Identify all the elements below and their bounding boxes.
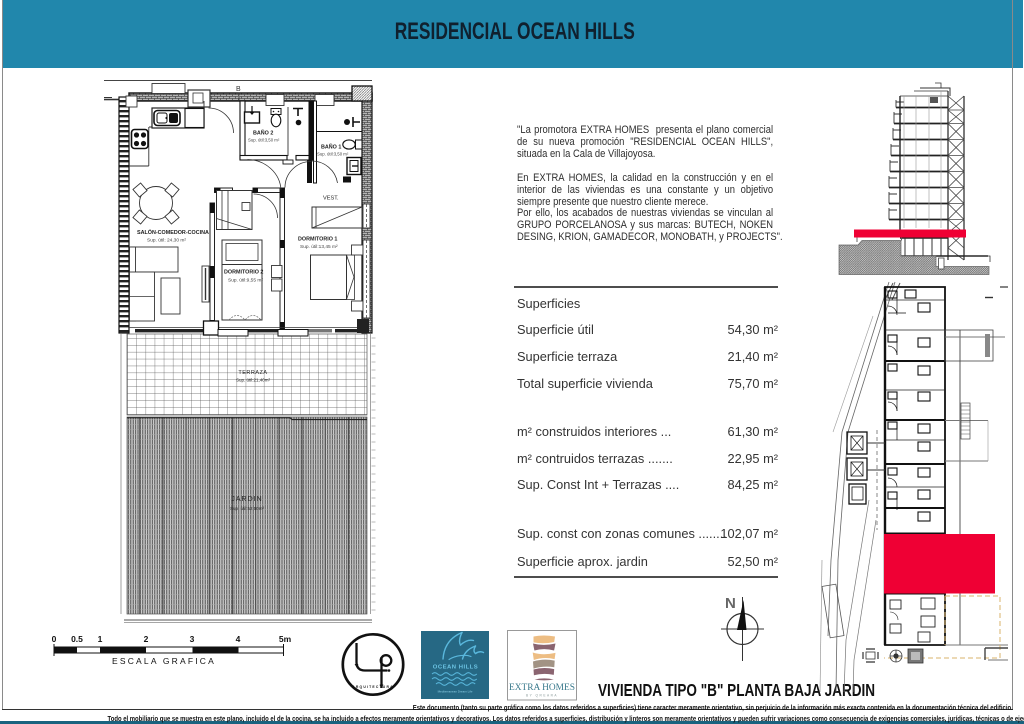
svg-text:ARQUITECTURA: ARQUITECTURA xyxy=(352,685,394,689)
svg-text:Mediterranean Dream Life: Mediterranean Dream Life xyxy=(438,690,473,694)
svg-text:2: 2 xyxy=(144,634,149,644)
svg-text:4: 4 xyxy=(236,634,241,644)
svg-text:5m: 5m xyxy=(279,634,292,644)
svg-text:0: 0 xyxy=(52,634,57,644)
svg-text:ESCALA GRAFICA: ESCALA GRAFICA xyxy=(112,656,216,666)
svg-text:N: N xyxy=(725,595,736,612)
svg-text:1: 1 xyxy=(98,634,103,644)
svg-text:0.5: 0.5 xyxy=(71,634,83,644)
svg-text:BY QREARA: BY QREARA xyxy=(526,694,558,698)
svg-text:OCEAN HILLS: OCEAN HILLS xyxy=(433,665,478,671)
svg-text:3: 3 xyxy=(190,634,195,644)
svg-text:EXTRA HOMES: EXTRA HOMES xyxy=(509,683,575,693)
